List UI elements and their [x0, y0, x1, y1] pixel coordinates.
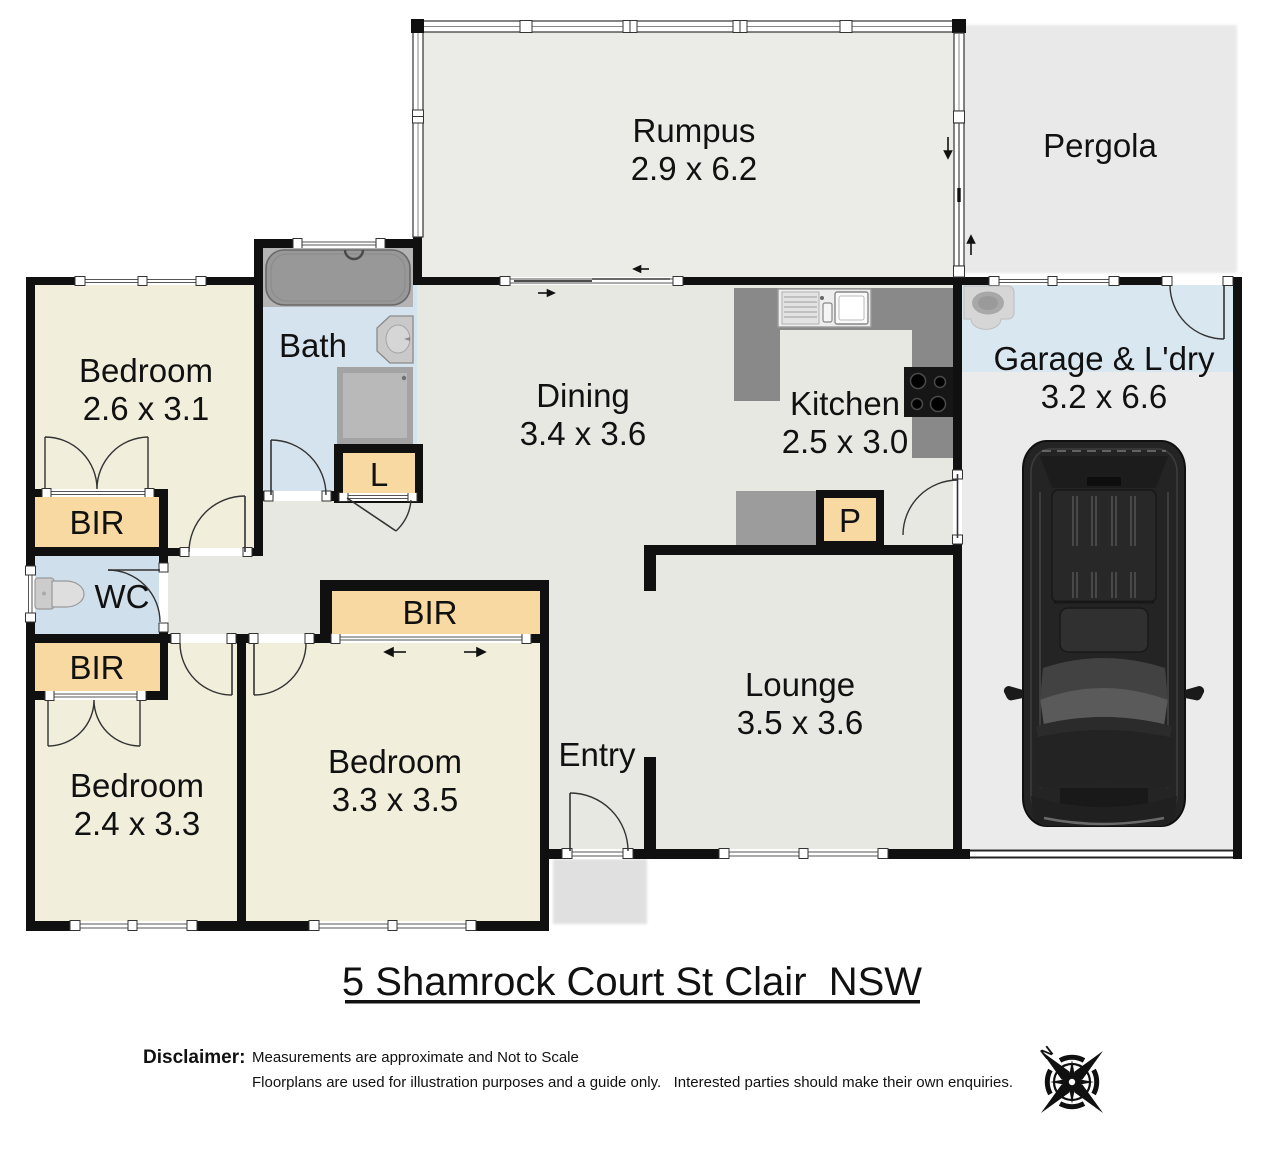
svg-text:Bedroom: Bedroom — [70, 767, 204, 804]
svg-text:Bedroom: Bedroom — [328, 743, 462, 780]
svg-text:3.4 x 3.6: 3.4 x 3.6 — [520, 415, 647, 452]
svg-text:Rumpus: Rumpus — [633, 112, 756, 149]
svg-text:Disclaimer:: Disclaimer: — [143, 1047, 245, 1068]
svg-text:Pergola: Pergola — [1043, 127, 1157, 164]
svg-text:P: P — [839, 502, 861, 539]
svg-text:3.2 x 6.6: 3.2 x 6.6 — [1041, 378, 1168, 415]
svg-text:Floorplans are used for illust: Floorplans are used for illustration pur… — [252, 1074, 1013, 1091]
svg-text:2.6 x 3.1: 2.6 x 3.1 — [83, 390, 210, 427]
svg-text:2.5 x 3.0: 2.5 x 3.0 — [782, 423, 909, 460]
svg-text:Dining: Dining — [536, 377, 630, 414]
svg-text:Measurements are approximate a: Measurements are approximate and Not to … — [252, 1049, 579, 1066]
svg-text:BIR: BIR — [402, 594, 457, 631]
svg-text:3.3 x 3.5: 3.3 x 3.5 — [332, 781, 459, 818]
svg-text:Bath: Bath — [279, 327, 347, 364]
svg-text:Lounge: Lounge — [745, 666, 855, 703]
svg-text:Bedroom: Bedroom — [79, 352, 213, 389]
svg-text:2.9 x 6.2: 2.9 x 6.2 — [631, 150, 758, 187]
svg-text:BIR: BIR — [69, 649, 124, 686]
svg-text:L: L — [370, 456, 388, 493]
svg-text:WC: WC — [95, 578, 150, 615]
svg-text:2.4 x 3.3: 2.4 x 3.3 — [74, 805, 201, 842]
svg-text:Entry: Entry — [558, 736, 636, 773]
svg-text:Garage & L'dry: Garage & L'dry — [994, 340, 1215, 377]
svg-text:5 Shamrock Court St Clair NSW: 5 Shamrock Court St Clair NSW — [342, 960, 922, 1004]
svg-text:Kitchen: Kitchen — [790, 385, 900, 422]
svg-text:3.5 x 3.6: 3.5 x 3.6 — [737, 704, 864, 741]
svg-text:BIR: BIR — [69, 504, 124, 541]
